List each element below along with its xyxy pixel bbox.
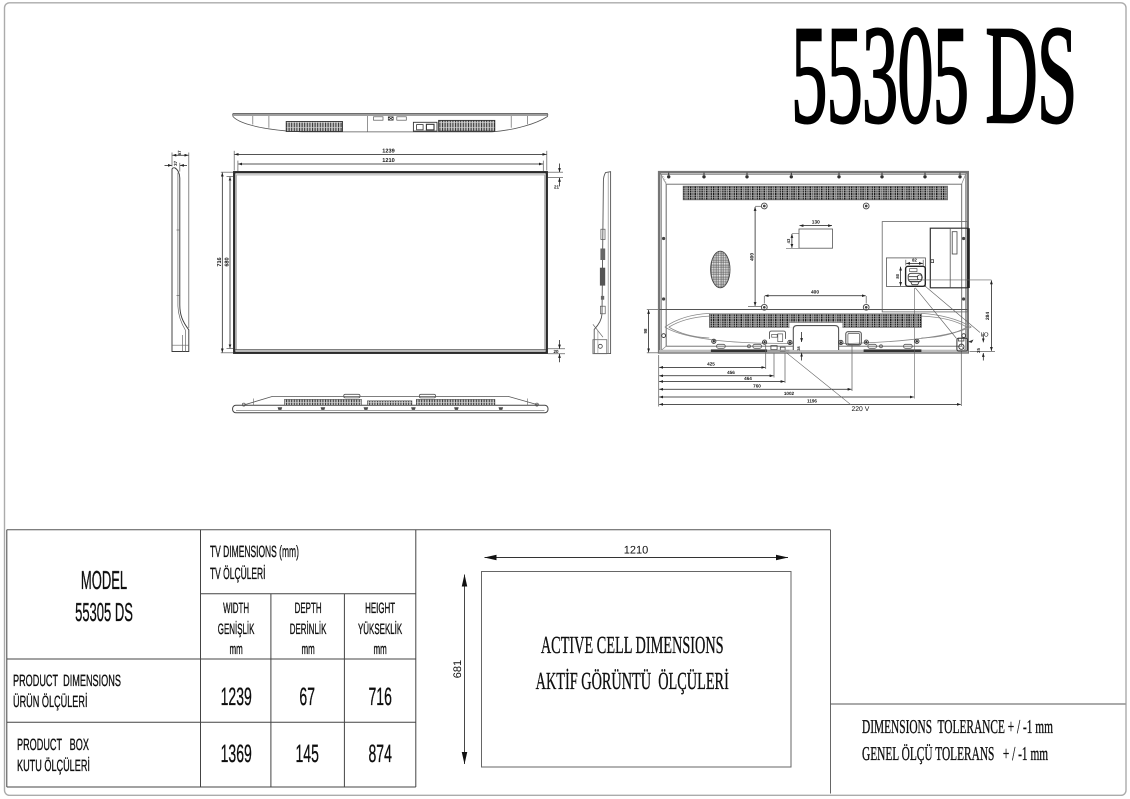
svg-text:716: 716	[217, 257, 223, 266]
svg-text:284: 284	[985, 312, 991, 320]
svg-text:1196: 1196	[807, 399, 817, 404]
svg-text:130: 130	[812, 220, 820, 226]
svg-text:98: 98	[643, 328, 648, 333]
svg-text:43: 43	[786, 238, 791, 243]
svg-text:20: 20	[553, 349, 559, 354]
svg-text:1239: 1239	[382, 149, 394, 155]
svg-text:21: 21	[554, 185, 560, 190]
svg-text:400: 400	[750, 253, 756, 261]
svg-text:1210: 1210	[382, 158, 394, 164]
svg-text:456: 456	[727, 370, 735, 375]
svg-text:680: 680	[225, 257, 231, 266]
svg-text:425: 425	[707, 362, 715, 367]
svg-text:67: 67	[177, 150, 182, 156]
svg-text:38: 38	[797, 346, 801, 350]
svg-text:82: 82	[912, 258, 917, 263]
svg-text:1210: 1210	[624, 545, 648, 557]
svg-text:464: 464	[744, 376, 752, 381]
svg-text:80: 80	[895, 273, 900, 278]
svg-text:35: 35	[976, 348, 981, 353]
svg-text:400: 400	[811, 290, 819, 296]
svg-text:I/O: I/O	[981, 332, 989, 339]
svg-text:1002: 1002	[784, 391, 795, 396]
svg-text:37: 37	[173, 160, 178, 166]
svg-text:681: 681	[452, 660, 464, 678]
svg-text:760: 760	[753, 384, 761, 389]
svg-text:220 V: 220 V	[852, 406, 870, 413]
